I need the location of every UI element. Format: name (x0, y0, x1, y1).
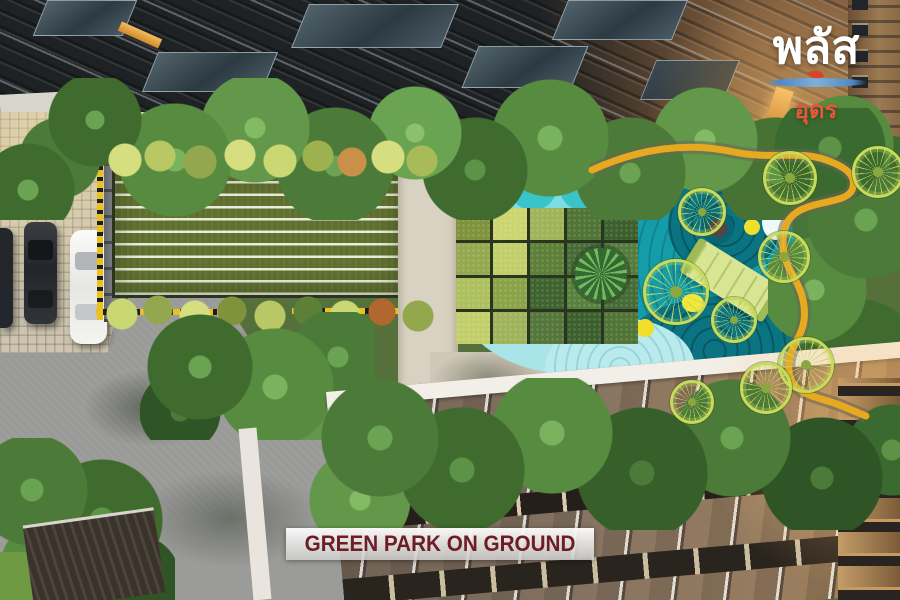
play-wheel (711, 297, 757, 343)
brand-logo: พลัส อุดร (748, 24, 884, 129)
play-wheel (678, 188, 726, 236)
brand-city-thai: อุดร (748, 90, 884, 129)
logo-swoosh-icon (765, 78, 867, 87)
brand-name-thai: พลัส (748, 24, 884, 70)
play-wheel (740, 362, 792, 414)
play-wheel (852, 146, 900, 198)
play-wheel (670, 380, 714, 424)
play-wheel (643, 259, 709, 325)
caption-banner: GREEN PARK ON GROUND (286, 528, 594, 560)
caption-text: GREEN PARK ON GROUND (305, 531, 576, 557)
aerial-render-scene: GREEN PARK ON GROUND พลัส อุดร (0, 0, 900, 600)
play-wheel (763, 151, 817, 205)
play-wheel (758, 231, 810, 283)
